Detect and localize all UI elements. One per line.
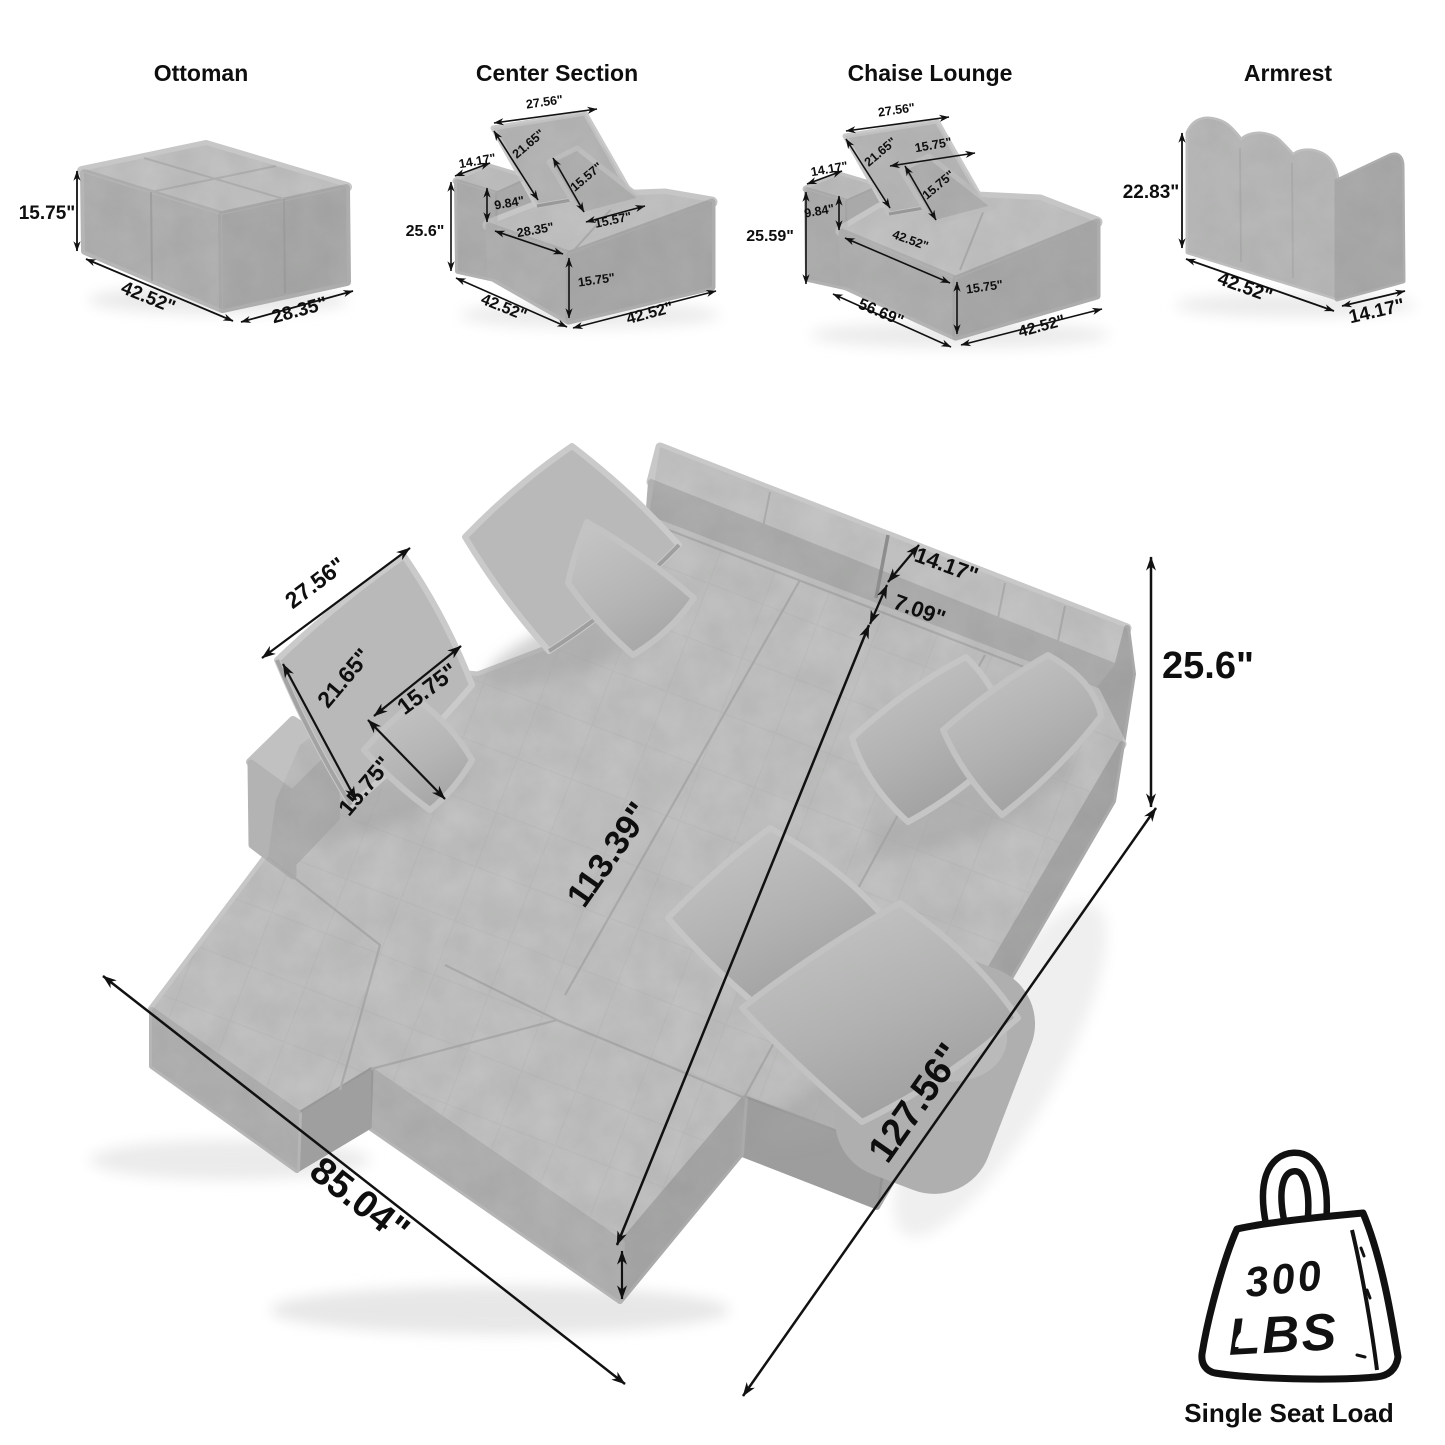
svg-text:15.75": 15.75" [19,203,76,224]
svg-text:Center Section: Center Section [476,60,638,86]
svg-text:27.56": 27.56" [525,93,564,112]
svg-text:300: 300 [1243,1251,1327,1306]
svg-text:25.6": 25.6" [1162,645,1254,687]
svg-text:Single Seat Load: Single Seat Load [1184,1398,1394,1428]
svg-text:Chaise Lounge: Chaise Lounge [848,60,1013,86]
svg-text:22.83": 22.83" [1123,182,1180,203]
svg-text:Armrest: Armrest [1244,60,1333,86]
svg-text:25.6": 25.6" [406,223,445,240]
svg-text:25.59": 25.59" [746,228,794,245]
svg-text:Ottoman: Ottoman [154,60,249,86]
svg-text:27.56": 27.56" [877,101,916,120]
